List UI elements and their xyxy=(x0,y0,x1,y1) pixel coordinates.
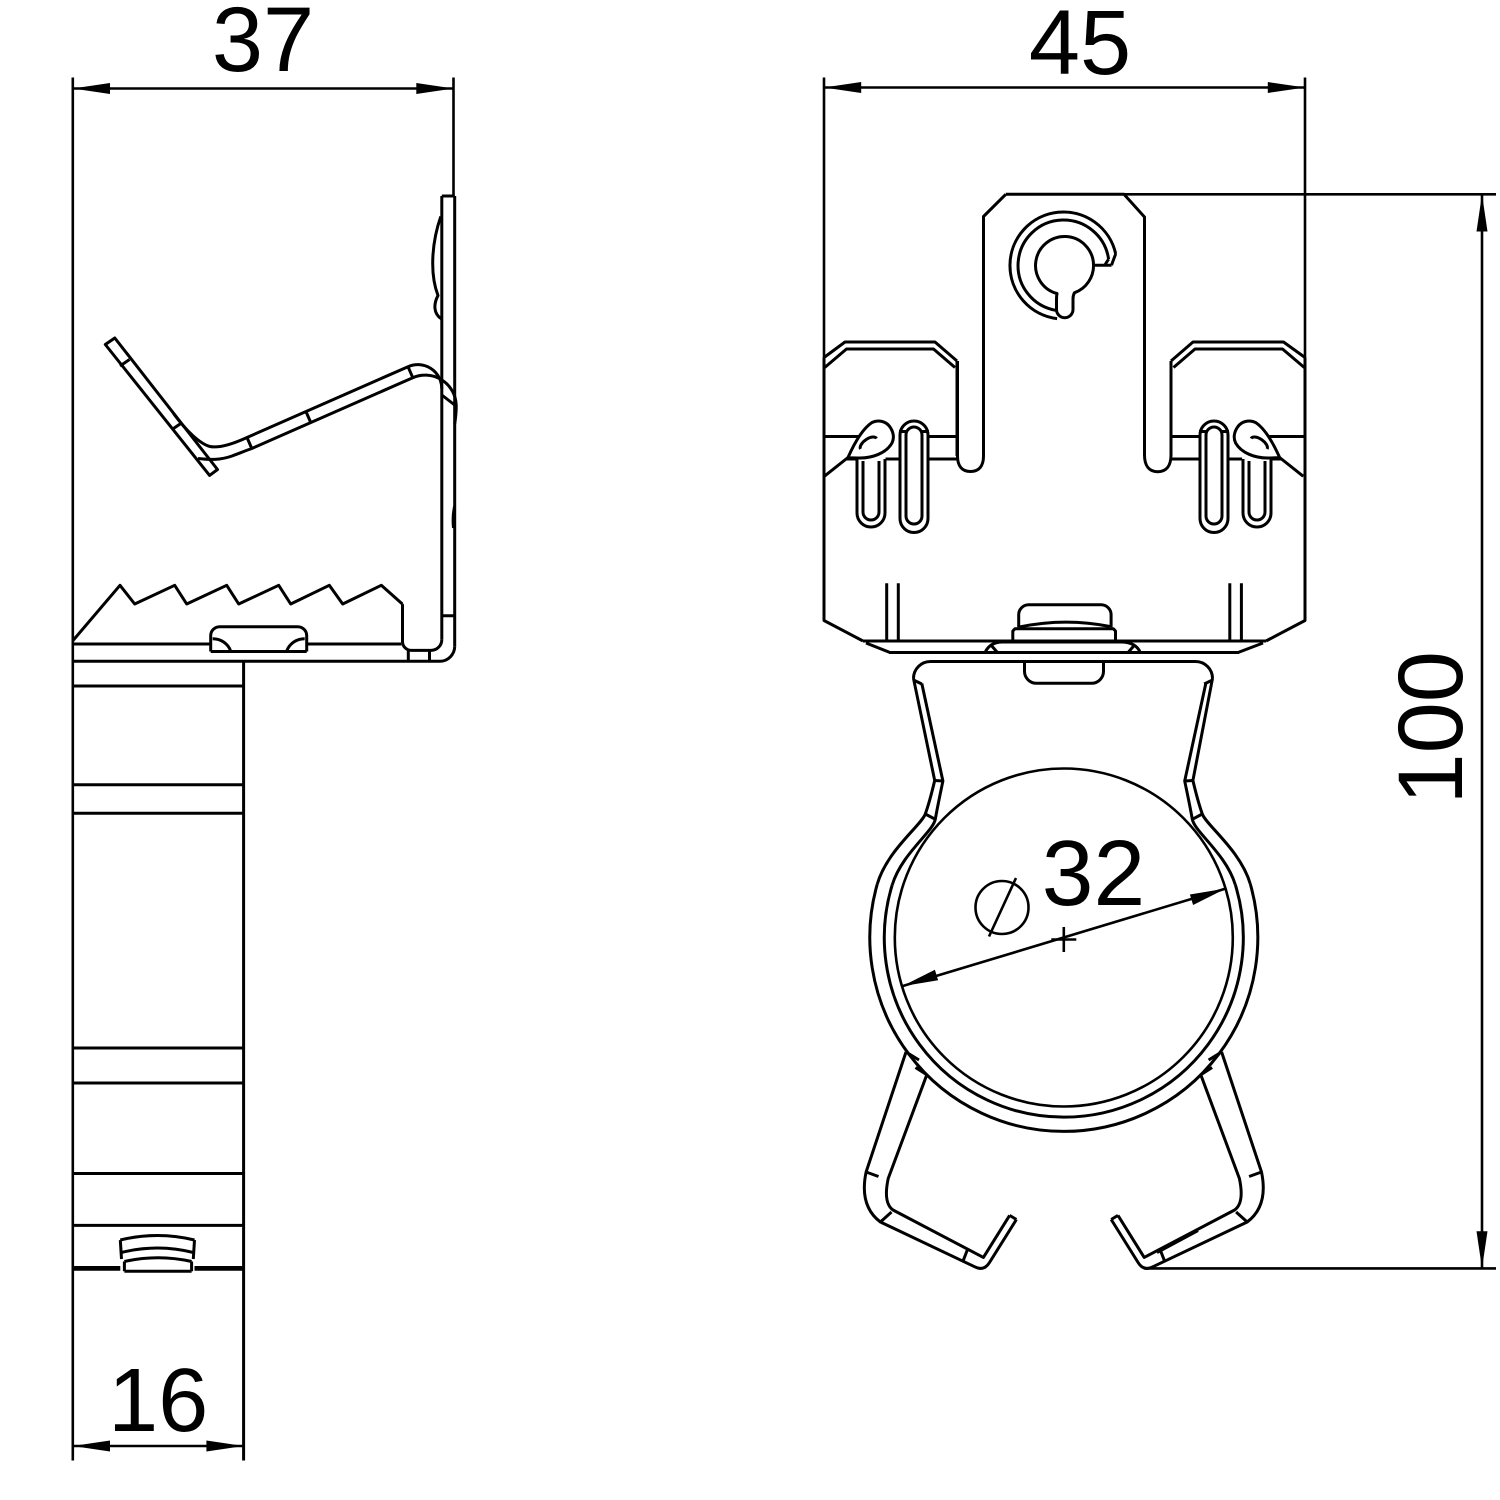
svg-text:45: 45 xyxy=(1029,0,1131,94)
svg-text:100: 100 xyxy=(1380,651,1482,805)
svg-text:32: 32 xyxy=(1042,821,1145,925)
svg-text:16: 16 xyxy=(108,1351,208,1451)
svg-text:37: 37 xyxy=(212,0,314,91)
